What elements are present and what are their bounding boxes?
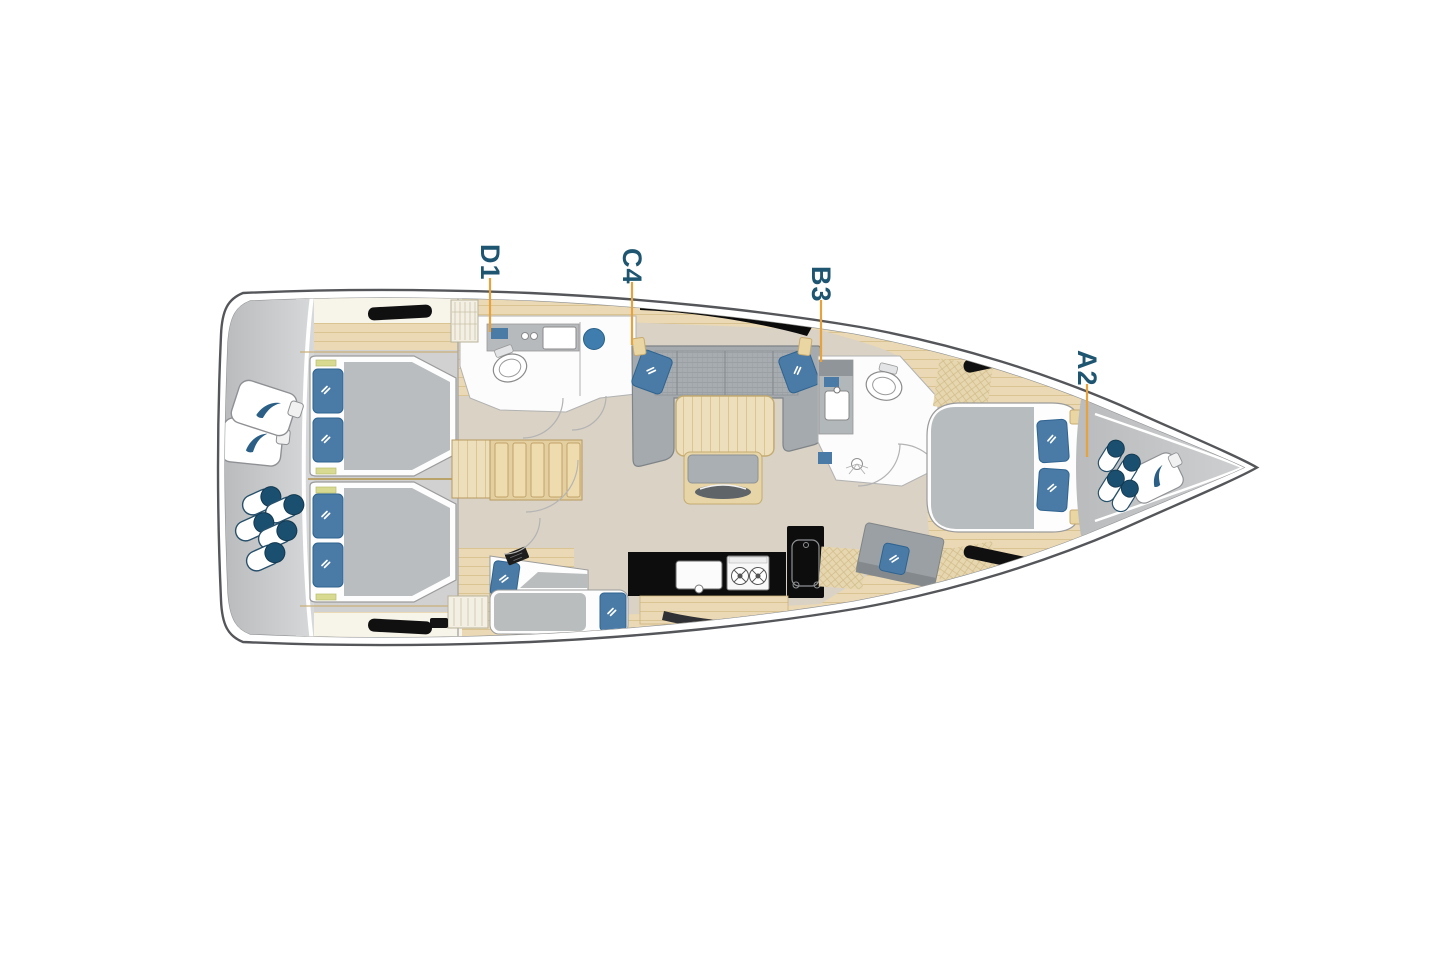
faucet: [531, 333, 538, 340]
salon-bench: [684, 452, 762, 504]
companionway-stairs: [452, 440, 582, 500]
reading-light: [316, 594, 336, 600]
stair-step: [549, 443, 562, 497]
reading-light: [316, 360, 336, 366]
hull-window-small: [430, 618, 448, 628]
towel: [824, 377, 839, 387]
bed-mattress: [344, 362, 450, 470]
bed-mattress: [344, 488, 450, 596]
stair-step: [531, 443, 544, 497]
stove-burners: [727, 556, 769, 590]
stair-step: [495, 443, 508, 497]
sink: [543, 327, 576, 349]
vanity-shelf: [819, 360, 853, 376]
cabin-marker-label: C4: [617, 248, 647, 285]
faucet: [522, 333, 529, 340]
sofa-corner-trim: [798, 337, 812, 356]
sofa-corner-trim: [632, 337, 646, 356]
salon-table: [676, 396, 774, 456]
cabin-marker-label: A2: [1072, 350, 1102, 387]
reading-light: [316, 487, 336, 493]
towel: [491, 328, 508, 339]
louvered-locker: [451, 300, 478, 342]
shower-mat: [818, 452, 832, 464]
round-basin: [584, 329, 605, 350]
pillow: [1037, 468, 1070, 512]
berth-mattress: [494, 593, 586, 631]
stern-deck: [218, 294, 314, 644]
stair-step: [513, 443, 526, 497]
louvered-locker: [448, 596, 488, 628]
yacht-floor-plan-page: D1 C4 B3 A2: [0, 0, 1439, 959]
aft-cabin-starboard: [300, 482, 458, 606]
bed-duvet: [931, 407, 1034, 529]
pillow: [879, 542, 910, 575]
yacht-floor-plan: D1 C4 B3 A2: [0, 0, 1439, 959]
reading-light: [316, 468, 336, 474]
faucet: [834, 387, 840, 393]
galley-fridge: [787, 526, 824, 598]
pillow: [1037, 419, 1070, 463]
cabin-marker-label: D1: [475, 244, 505, 281]
sofa-cushions: [655, 351, 798, 395]
bow-deck: [1076, 394, 1250, 542]
aft-cabin-port: [300, 352, 458, 476]
faucet: [695, 585, 703, 593]
cabin-marker-label: B3: [806, 266, 836, 303]
sink: [825, 391, 849, 420]
